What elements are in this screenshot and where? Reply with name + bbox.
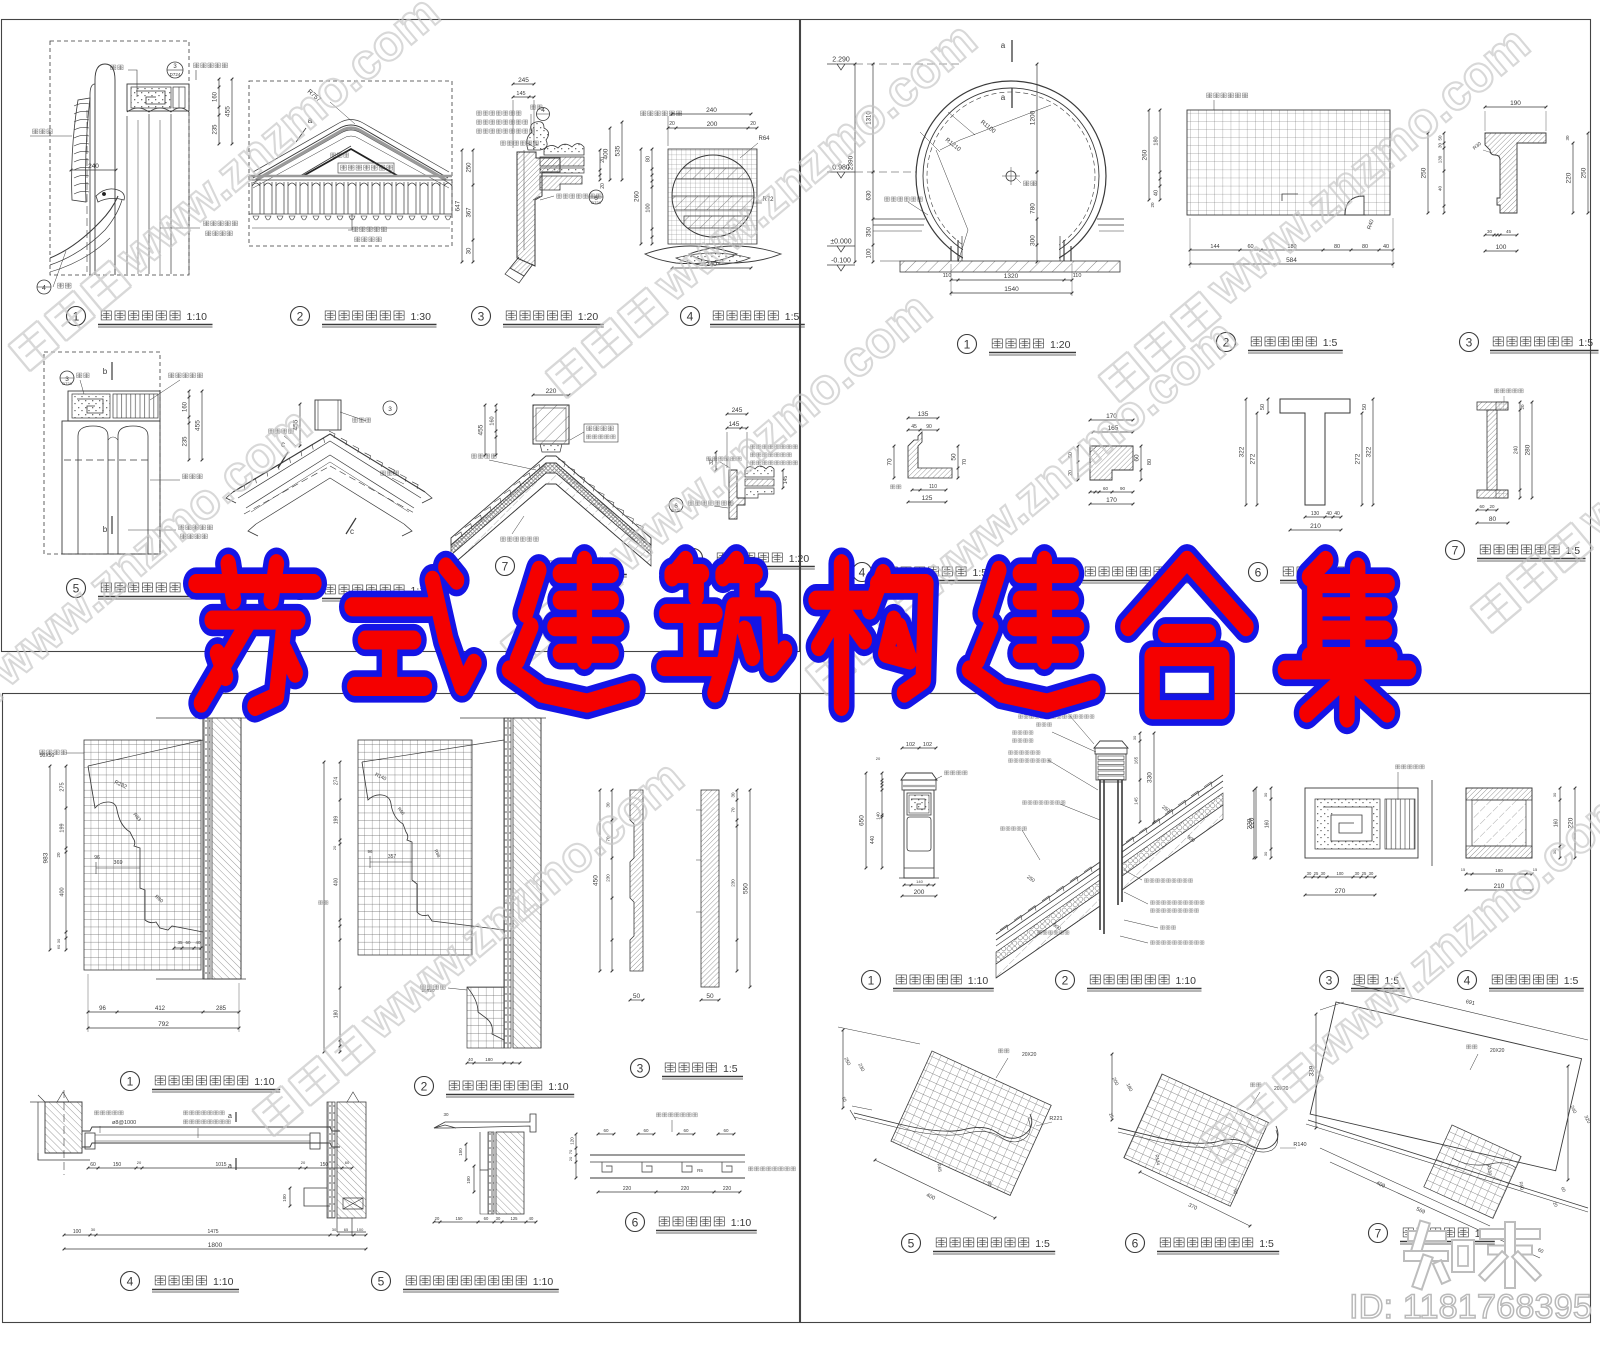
- svg-text:1540: 1540: [1004, 286, 1019, 293]
- svg-text:220: 220: [1566, 172, 1573, 183]
- svg-text:60: 60: [603, 1128, 609, 1133]
- svg-text:60: 60: [1479, 504, 1485, 509]
- svg-text:1320: 1320: [1004, 273, 1019, 280]
- svg-text:983: 983: [43, 852, 50, 863]
- svg-text:50: 50: [1260, 404, 1266, 410]
- svg-text:80: 80: [646, 156, 652, 162]
- svg-text:40: 40: [1334, 511, 1340, 517]
- svg-text:20X20: 20X20: [1490, 1048, 1505, 1054]
- svg-text:20: 20: [750, 121, 756, 127]
- svg-text:30: 30: [467, 247, 473, 254]
- svg-text:60: 60: [185, 940, 191, 945]
- svg-text:60: 60: [90, 1162, 96, 1168]
- svg-text:5: 5: [378, 1275, 385, 1289]
- svg-text:400: 400: [60, 887, 66, 896]
- svg-text:90: 90: [1120, 486, 1126, 491]
- svg-text:210: 210: [1310, 523, 1321, 530]
- svg-text:285: 285: [216, 1006, 227, 1012]
- svg-text:100: 100: [73, 1229, 82, 1235]
- svg-text:60: 60: [683, 1128, 689, 1133]
- svg-text:2: 2: [1062, 974, 1069, 988]
- svg-text:20: 20: [301, 1160, 306, 1165]
- svg-text:ø8@1000: ø8@1000: [112, 1120, 136, 1126]
- svg-text:30: 30: [1552, 792, 1557, 797]
- svg-text:190: 190: [1510, 100, 1521, 107]
- svg-text:1:5: 1:5: [723, 1063, 738, 1075]
- svg-text:20: 20: [1489, 504, 1495, 509]
- svg-text:100: 100: [282, 1194, 287, 1202]
- svg-text:412: 412: [155, 1006, 166, 1012]
- svg-text:20: 20: [600, 183, 606, 189]
- svg-text:100: 100: [1496, 244, 1507, 251]
- svg-text:60: 60: [643, 1128, 649, 1133]
- svg-text:260: 260: [634, 191, 641, 202]
- svg-text:-0.100: -0.100: [831, 258, 851, 265]
- svg-text:70: 70: [731, 807, 736, 813]
- svg-text:60: 60: [1134, 454, 1141, 462]
- svg-text:200: 200: [914, 889, 925, 896]
- svg-text:272: 272: [1250, 453, 1257, 464]
- svg-text:650: 650: [859, 815, 866, 826]
- svg-text:322: 322: [1366, 446, 1373, 457]
- svg-text:40: 40: [1326, 511, 1332, 517]
- svg-text:230: 230: [731, 879, 736, 887]
- svg-text:50: 50: [633, 993, 641, 1000]
- svg-text:144: 144: [1210, 244, 1219, 250]
- svg-text:40: 40: [1438, 186, 1443, 192]
- svg-text:160: 160: [213, 91, 219, 102]
- svg-text:40: 40: [529, 1216, 534, 1221]
- svg-text:70: 70: [568, 1149, 573, 1154]
- svg-text:4: 4: [859, 566, 866, 580]
- svg-text:60: 60: [56, 944, 61, 949]
- svg-text:400: 400: [334, 878, 340, 887]
- svg-text:ID: 1181768395: ID: 1181768395: [1349, 1288, 1592, 1326]
- svg-text:a: a: [228, 1163, 232, 1170]
- svg-text:a: a: [228, 1113, 232, 1120]
- svg-text:250: 250: [1581, 167, 1588, 178]
- svg-text:270: 270: [1335, 888, 1346, 895]
- svg-text:150: 150: [458, 1148, 463, 1156]
- svg-text:80: 80: [1489, 516, 1497, 523]
- svg-text:3: 3: [637, 1062, 644, 1076]
- svg-text:a: a: [1001, 93, 1006, 102]
- svg-text:40: 40: [1154, 190, 1160, 196]
- svg-text:1:5: 1:5: [1035, 1238, 1050, 1250]
- svg-text:220: 220: [681, 1186, 690, 1192]
- svg-text:5: 5: [908, 1237, 915, 1251]
- svg-text:350: 350: [867, 226, 873, 237]
- svg-text:3: 3: [388, 406, 392, 413]
- svg-text:6: 6: [632, 1216, 639, 1230]
- svg-text:1:10: 1:10: [187, 311, 208, 323]
- svg-text:2: 2: [297, 310, 304, 324]
- svg-text:100: 100: [646, 203, 652, 212]
- svg-text:1: 1: [868, 974, 875, 988]
- svg-text:1:10: 1:10: [1176, 975, 1197, 987]
- svg-text:274: 274: [334, 777, 340, 786]
- svg-text:220: 220: [1249, 817, 1256, 828]
- svg-text:25: 25: [1314, 871, 1319, 876]
- svg-text:535: 535: [615, 145, 622, 156]
- svg-text:7: 7: [1452, 544, 1459, 558]
- svg-text:20: 20: [137, 1160, 142, 1165]
- svg-text:80: 80: [1334, 244, 1340, 250]
- svg-text:40: 40: [195, 940, 201, 945]
- svg-text:60: 60: [484, 1216, 489, 1221]
- svg-text:30: 30: [1263, 851, 1268, 856]
- svg-text:60: 60: [1103, 486, 1109, 491]
- svg-text:a: a: [1001, 41, 1006, 50]
- svg-text:3: 3: [1466, 336, 1473, 350]
- svg-text:30: 30: [1263, 792, 1268, 797]
- svg-text:2.290: 2.290: [832, 57, 850, 64]
- svg-text:30: 30: [56, 938, 61, 943]
- svg-text:50: 50: [951, 453, 958, 461]
- svg-text:96: 96: [99, 1006, 106, 1012]
- svg-text:30: 30: [1355, 871, 1360, 876]
- svg-text:3: 3: [478, 310, 485, 324]
- svg-text:70: 70: [962, 459, 968, 465]
- svg-text:150: 150: [456, 1216, 464, 1221]
- svg-text:b: b: [103, 367, 108, 376]
- svg-text:50: 50: [706, 993, 714, 1000]
- svg-text:455: 455: [195, 420, 202, 431]
- svg-text:30: 30: [1487, 229, 1493, 234]
- svg-text:30: 30: [1321, 871, 1326, 876]
- svg-text:145: 145: [516, 91, 525, 97]
- svg-text:7: 7: [1375, 1227, 1382, 1241]
- svg-text:50X50: 50X50: [40, 753, 55, 759]
- svg-text:1800: 1800: [208, 1242, 223, 1249]
- svg-text:35: 35: [177, 940, 183, 945]
- svg-text:250: 250: [467, 162, 473, 173]
- svg-text:100: 100: [867, 248, 873, 259]
- svg-text:R140: R140: [1293, 1142, 1306, 1148]
- svg-text:1: 1: [127, 1075, 134, 1089]
- svg-text:20: 20: [669, 121, 675, 127]
- svg-text:20: 20: [600, 157, 606, 163]
- svg-text:792: 792: [158, 1021, 169, 1028]
- svg-text:1015: 1015: [215, 1162, 226, 1168]
- svg-text:140: 140: [876, 812, 881, 820]
- svg-text:245: 245: [518, 77, 529, 84]
- svg-text:1: 1: [964, 338, 971, 352]
- svg-text:780: 780: [1030, 203, 1037, 214]
- svg-text:96: 96: [367, 849, 373, 854]
- svg-text:D724: D724: [591, 200, 601, 205]
- svg-text:30: 30: [443, 1112, 449, 1117]
- svg-text:199: 199: [334, 816, 340, 825]
- svg-text:1:10: 1:10: [213, 1276, 234, 1288]
- svg-text:245: 245: [732, 407, 743, 414]
- svg-text:100: 100: [357, 1227, 364, 1232]
- svg-text:367: 367: [467, 207, 473, 218]
- svg-text:30: 30: [496, 1216, 501, 1221]
- svg-text:2: 2: [421, 1080, 428, 1094]
- svg-text:160: 160: [183, 401, 189, 412]
- svg-text:357: 357: [388, 854, 397, 860]
- svg-text:630: 630: [867, 190, 873, 201]
- svg-text:260: 260: [1142, 149, 1149, 160]
- svg-text:440: 440: [870, 836, 876, 845]
- svg-text:160: 160: [1265, 820, 1271, 829]
- svg-text:220: 220: [546, 388, 557, 395]
- svg-text:40: 40: [1383, 244, 1389, 250]
- svg-text:240: 240: [88, 163, 99, 170]
- svg-text:70: 70: [887, 458, 894, 466]
- svg-text:1:10: 1:10: [731, 1217, 752, 1229]
- svg-text:110: 110: [929, 484, 937, 490]
- svg-text:100: 100: [466, 1176, 471, 1184]
- svg-text:50: 50: [1362, 404, 1368, 410]
- svg-text:1:5: 1:5: [1259, 1238, 1274, 1250]
- svg-text:1:30: 1:30: [411, 311, 432, 323]
- svg-text:1200: 1200: [1030, 110, 1037, 125]
- svg-text:165: 165: [1134, 756, 1139, 764]
- svg-text:30: 30: [731, 792, 736, 798]
- svg-text:1:5: 1:5: [785, 311, 800, 323]
- svg-text:D724: D724: [170, 72, 181, 77]
- svg-text:125: 125: [511, 1216, 519, 1221]
- svg-text:20: 20: [568, 1156, 573, 1161]
- svg-text:90: 90: [926, 424, 932, 430]
- svg-text:30: 30: [332, 1227, 337, 1232]
- svg-text:3: 3: [1326, 974, 1333, 988]
- svg-text:30: 30: [1132, 735, 1137, 740]
- svg-text:150: 150: [320, 1162, 329, 1168]
- svg-text:135: 135: [918, 411, 929, 418]
- svg-text:30: 30: [1438, 143, 1443, 149]
- svg-text:25: 25: [1362, 871, 1367, 876]
- svg-text:145: 145: [783, 476, 789, 485]
- svg-text:b: b: [103, 525, 108, 534]
- svg-text:200: 200: [707, 121, 718, 128]
- svg-text:1475: 1475: [207, 1229, 218, 1235]
- svg-text:180: 180: [1154, 136, 1160, 145]
- svg-text:199: 199: [60, 823, 66, 832]
- svg-text:30: 30: [1307, 871, 1312, 876]
- svg-text:4: 4: [687, 310, 694, 324]
- svg-text:110: 110: [943, 273, 952, 279]
- svg-text:322: 322: [1239, 446, 1246, 457]
- svg-text:455: 455: [478, 424, 485, 435]
- svg-text:240: 240: [1514, 446, 1520, 455]
- svg-text:450: 450: [593, 875, 600, 886]
- svg-text:130: 130: [1311, 511, 1320, 517]
- svg-text:1:10: 1:10: [548, 1081, 569, 1093]
- svg-text:280: 280: [1525, 444, 1532, 455]
- svg-text:102: 102: [923, 742, 932, 748]
- svg-text:102: 102: [906, 742, 915, 748]
- svg-text:R5: R5: [697, 1168, 703, 1173]
- svg-text:220: 220: [723, 1186, 732, 1192]
- svg-text:1:10: 1:10: [968, 975, 989, 987]
- svg-text:250: 250: [1421, 167, 1428, 178]
- svg-text:300: 300: [1030, 235, 1037, 246]
- svg-text:1:10: 1:10: [533, 1276, 554, 1288]
- svg-text:1:10: 1:10: [254, 1076, 275, 1088]
- svg-text:1:20: 1:20: [1050, 339, 1071, 351]
- svg-text:20: 20: [332, 845, 337, 850]
- svg-text:330: 330: [1147, 772, 1154, 783]
- svg-text:1:5: 1:5: [1564, 975, 1579, 987]
- svg-text:6: 6: [1255, 566, 1262, 580]
- svg-text:45: 45: [911, 424, 917, 430]
- svg-text:100: 100: [1337, 871, 1345, 876]
- svg-text:4: 4: [127, 1275, 134, 1289]
- svg-text:170: 170: [1106, 497, 1117, 504]
- svg-text:60: 60: [345, 1160, 350, 1165]
- svg-text:4: 4: [1464, 974, 1471, 988]
- svg-text:6: 6: [1132, 1237, 1139, 1251]
- svg-text:96: 96: [94, 855, 100, 861]
- svg-text:20: 20: [435, 1216, 440, 1221]
- svg-text:20: 20: [876, 756, 881, 761]
- svg-text:60: 60: [723, 1128, 729, 1133]
- svg-text:150: 150: [113, 1162, 122, 1168]
- svg-text:1:20: 1:20: [578, 311, 599, 323]
- svg-text:180: 180: [334, 1010, 340, 1019]
- svg-text:1:5: 1:5: [1579, 337, 1594, 349]
- svg-text:65: 65: [344, 1227, 349, 1232]
- svg-text:550: 550: [743, 883, 750, 894]
- svg-text:30: 30: [91, 1227, 96, 1232]
- svg-text:20X20: 20X20: [1022, 1052, 1037, 1058]
- svg-text:1:20: 1:20: [789, 553, 810, 565]
- svg-text:180: 180: [485, 1057, 493, 1062]
- svg-text:45: 45: [1506, 229, 1512, 234]
- svg-text:20: 20: [1150, 202, 1155, 208]
- svg-text:455: 455: [225, 106, 232, 117]
- svg-text:20: 20: [1520, 404, 1525, 410]
- svg-text:125: 125: [922, 495, 933, 502]
- svg-text:120: 120: [570, 1137, 575, 1145]
- svg-text:275: 275: [60, 782, 66, 791]
- svg-text:220: 220: [623, 1186, 632, 1192]
- svg-text:80: 80: [1147, 459, 1153, 465]
- svg-text:R64: R64: [758, 136, 770, 142]
- svg-text:369: 369: [113, 860, 122, 866]
- svg-text:110: 110: [1073, 273, 1082, 279]
- svg-text:80: 80: [1362, 244, 1368, 250]
- svg-text:R221: R221: [1049, 1116, 1062, 1122]
- svg-text:15: 15: [1461, 867, 1466, 872]
- svg-text:D724: D724: [62, 381, 72, 386]
- svg-text:272: 272: [1355, 453, 1362, 464]
- svg-text:±0.000: ±0.000: [830, 239, 851, 246]
- svg-text:20: 20: [56, 852, 61, 858]
- svg-text:30: 30: [1565, 135, 1570, 141]
- svg-text:647: 647: [455, 200, 462, 211]
- svg-text:145: 145: [1134, 797, 1139, 805]
- svg-text:1:5: 1:5: [1323, 337, 1338, 349]
- svg-text:c: c: [350, 527, 354, 536]
- svg-text:140: 140: [916, 879, 923, 884]
- svg-text:40: 40: [468, 1057, 474, 1062]
- svg-text:160: 160: [490, 416, 496, 425]
- svg-text:7: 7: [502, 560, 509, 574]
- svg-text:4: 4: [42, 285, 46, 292]
- svg-text:235: 235: [183, 436, 189, 447]
- svg-text:30: 30: [1369, 871, 1374, 876]
- svg-text:230: 230: [606, 874, 611, 882]
- svg-text:240: 240: [706, 107, 717, 114]
- svg-text:130: 130: [1438, 155, 1443, 163]
- svg-text:235: 235: [213, 124, 219, 135]
